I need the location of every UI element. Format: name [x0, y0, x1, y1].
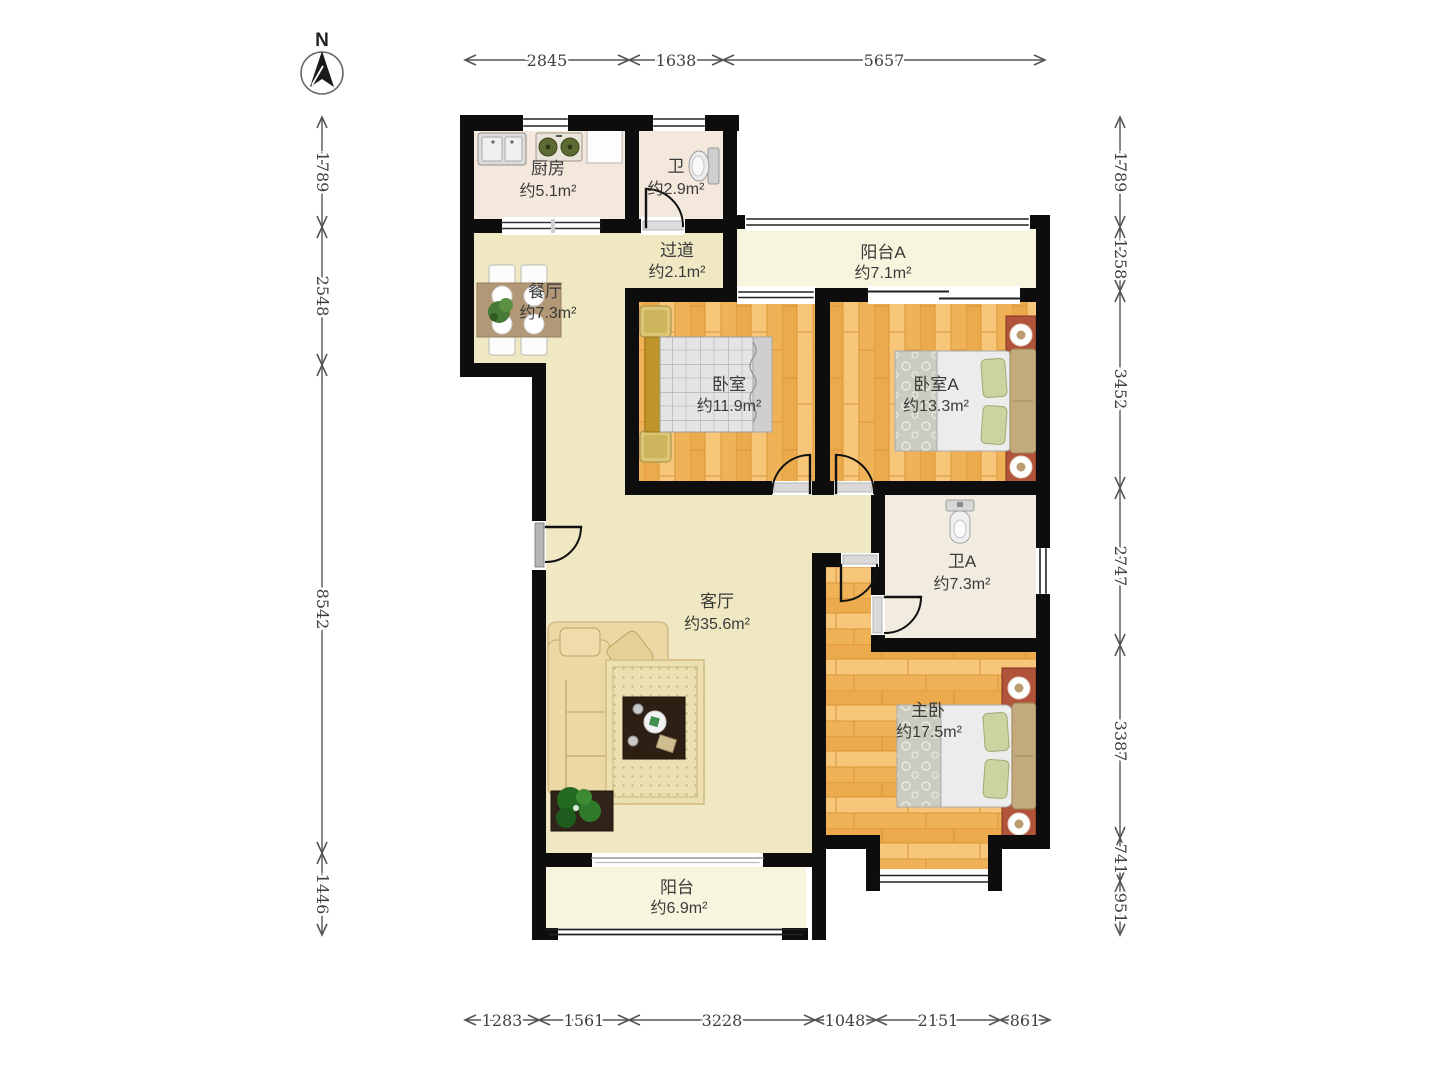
window	[523, 113, 568, 131]
coffee-table	[623, 697, 685, 759]
dimension-label: 1638	[656, 51, 697, 70]
balcony-a-window	[745, 213, 1030, 231]
dimension-label: 2845	[527, 51, 568, 70]
bedroom-a-balcony-slider	[868, 286, 1020, 304]
room-area-master: 约17.5m²	[896, 723, 962, 741]
sofa-pillow	[560, 628, 600, 656]
floor-plan-page: 厨房 约5.1m² 卫 约2.9m² 过道 约2.1m² 阳台A 约7.1m² …	[0, 0, 1440, 1080]
room-area-living: 约35.6m²	[684, 615, 750, 633]
room-label-bedroom-a: 卧室A	[913, 375, 959, 394]
room-label-living: 客厅	[700, 592, 734, 611]
room-area-bedroom: 约11.9m²	[697, 397, 762, 415]
compass: N	[301, 30, 343, 94]
dimension-label: 1048	[825, 1011, 866, 1030]
room-area-bedroom-a: 约13.3m²	[903, 397, 969, 415]
dimension-label: 1446	[313, 874, 332, 915]
dimension-label: 1789	[1111, 152, 1130, 193]
room-area-balcony-a: 约7.1m²	[855, 264, 913, 282]
floor-plant	[551, 787, 613, 831]
room-area-corridor: 约2.1m²	[649, 263, 707, 281]
balcony-floor	[546, 867, 806, 928]
kitchen-pass-window	[502, 217, 600, 235]
master-bay-window	[880, 869, 988, 889]
room-label-balcony-a: 阳台A	[860, 243, 906, 262]
room-area-dining: 约7.3m²	[520, 304, 578, 322]
room-area-bath-a: 约7.3m²	[934, 575, 992, 593]
bed-headboard	[645, 337, 660, 432]
dimension-label: 5657	[864, 51, 905, 70]
dimension-label: 2151	[918, 1011, 959, 1030]
room-area-balcony: 约6.9m²	[651, 899, 709, 917]
room-label-kitchen: 厨房	[531, 159, 565, 178]
dimension-label: 951	[1111, 893, 1130, 924]
dimension-label: 1258	[1111, 239, 1130, 280]
balcony-window	[546, 930, 806, 935]
dimension-label: 8542	[313, 589, 332, 630]
room-label-bedroom: 卧室	[712, 375, 746, 394]
room-area-bath: 约2.9m²	[648, 180, 706, 198]
balcony-slider	[592, 853, 763, 867]
pillow	[983, 712, 1010, 752]
bath-a-toilet	[946, 500, 974, 543]
room-label-dining: 餐厅	[528, 282, 562, 301]
master-bay-floor	[880, 835, 988, 871]
room-area-kitchen: 约5.1m²	[520, 182, 578, 200]
dimension-label: 3387	[1111, 721, 1130, 762]
window	[653, 113, 705, 131]
bedroom-balcony-window	[737, 286, 815, 304]
room-label-corridor: 过道	[660, 241, 694, 260]
dimension-label: 1283	[482, 1011, 523, 1030]
dimension-label: 2747	[1111, 546, 1130, 587]
bath-toilet	[689, 148, 719, 184]
room-label-bath: 卫	[668, 157, 685, 176]
pillow	[983, 759, 1010, 799]
pillow	[981, 358, 1008, 398]
room-label-master: 主卧	[911, 701, 945, 720]
room-label-bath-a: 卫A	[948, 552, 977, 571]
dimension-label: 1789	[313, 152, 332, 193]
dimension-label: 3452	[1111, 369, 1130, 410]
floor-plan-canvas: 厨房 约5.1m² 卫 约2.9m² 过道 约2.1m² 阳台A 约7.1m² …	[0, 0, 1440, 1080]
dimension-label: 741	[1111, 844, 1130, 875]
kitchen-fridge	[587, 129, 622, 163]
dimension-label: 3228	[702, 1011, 743, 1030]
living-nook-floor	[826, 495, 871, 553]
north-label: N	[315, 30, 329, 51]
dimension-label: 2548	[313, 276, 332, 317]
bath-a-window	[1036, 548, 1050, 594]
kitchen-sink	[478, 133, 526, 165]
kitchen-stove	[536, 133, 582, 161]
dimension-label: 1561	[564, 1011, 605, 1030]
pillow	[981, 405, 1008, 445]
room-label-balcony: 阳台	[660, 878, 694, 897]
dimension-label: 861	[1010, 1011, 1041, 1030]
